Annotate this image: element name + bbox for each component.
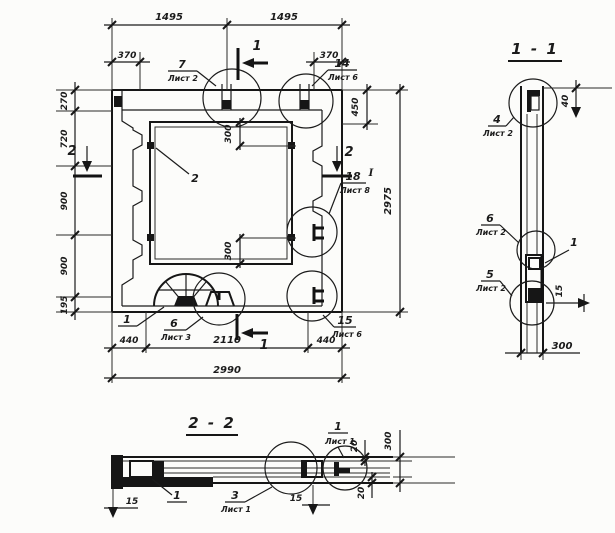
callout-2-opening: 2 xyxy=(156,148,199,185)
callout-number: 6 xyxy=(170,317,178,330)
detail-circles xyxy=(193,69,337,325)
section-1-label: 1 xyxy=(259,338,268,353)
callout-4-sheet-2: 4 Лист 2 xyxy=(482,113,514,138)
drawing-canvas: 1495 1495 370 370 xyxy=(0,0,615,533)
dim-300: 300 xyxy=(552,341,573,352)
dim-195: 195 xyxy=(60,296,70,315)
callout-sheet: Лист 2 xyxy=(475,284,506,293)
plan-panel-outline xyxy=(112,90,342,312)
callout-sheet: Лист 6 xyxy=(331,330,362,339)
dim-300: 300 xyxy=(384,432,394,451)
callout-number: 1 xyxy=(334,420,342,433)
callout-6-sheet-2: 6 Лист 2 xyxy=(475,212,519,243)
section-1-1: 1 - 1 40 xyxy=(475,40,612,360)
dim-450: 450 xyxy=(351,98,361,118)
channel-embed-detail xyxy=(510,231,555,325)
dim-15-left: 15 xyxy=(126,497,139,507)
callout-number: 14 xyxy=(334,57,349,70)
callout-sheet: Лист 2 xyxy=(475,228,506,237)
section-1-label: 1 xyxy=(252,39,261,54)
dim-900-b: 900 xyxy=(60,257,70,276)
callout-sheet: Лист 1 xyxy=(324,437,355,446)
callout-sheet: Лист 8 xyxy=(339,186,370,195)
callout-number: 1 xyxy=(570,236,578,249)
bottom-anchor-key xyxy=(206,292,234,306)
callout-number: 1 xyxy=(123,313,131,326)
callout-14-sheet-6: 14 Лист 6 xyxy=(312,57,358,86)
callout-sheet: Лист 6 xyxy=(327,73,358,82)
callout-number: 18 xyxy=(345,170,361,183)
callout-number: 2 xyxy=(191,172,199,185)
section-mark-1-top: 1 xyxy=(238,39,268,80)
engineering-drawing-sheet: 1495 1495 370 370 xyxy=(0,0,615,533)
callout-sheet: Лист 1 xyxy=(220,505,251,514)
callout-number: 3 xyxy=(231,489,239,502)
section-2-label: 2 xyxy=(344,145,353,160)
callout-number: 15 xyxy=(337,314,353,327)
section-mark-2-left: 2 xyxy=(67,144,102,176)
dim-2975: 2975 xyxy=(383,187,394,215)
callout-mark: I xyxy=(368,168,374,179)
dim-900-a: 900 xyxy=(60,192,70,211)
dim-270: 270 xyxy=(60,92,70,111)
dim-370-left: 370 xyxy=(118,51,137,61)
section-2-2-title: 2 - 2 xyxy=(188,414,236,432)
dim-1495-left: 1495 xyxy=(155,12,183,23)
callout-number: 7 xyxy=(178,58,186,71)
callout-1-loop: 1 xyxy=(118,307,164,326)
section-2-label: 2 xyxy=(67,144,76,159)
callout-number: 6 xyxy=(486,212,494,225)
left-end-detail xyxy=(111,455,213,489)
callout-1-channel: 1 xyxy=(545,236,578,263)
section-mark-1-bottom: 1 xyxy=(237,314,269,353)
callout-5-sheet-2: 5 Лист 2 xyxy=(475,268,512,296)
dim-15-right: 15 xyxy=(290,494,303,504)
top-anchor-detail xyxy=(509,79,557,127)
plan-callouts: 7 Лист 2 14 Лист 6 2 18 I Лист 8 xyxy=(118,57,374,342)
dim-300-bottom: 300 xyxy=(224,242,234,261)
dim-15: 15 xyxy=(555,285,565,298)
callout-number: 4 xyxy=(492,113,501,126)
dim-20-bottom: 20 xyxy=(357,487,367,500)
dim-440-left: 440 xyxy=(119,336,139,346)
plan-opening xyxy=(147,122,295,264)
callout-3-sheet-1: 3 Лист 1 xyxy=(220,487,272,514)
dim-300-top: 300 xyxy=(224,125,234,144)
callout-sheet: Лист 2 xyxy=(482,129,513,138)
callout-sheet: Лист 2 xyxy=(167,74,198,83)
callout-sheet: Лист 3 xyxy=(160,333,191,342)
corner-embed-mark xyxy=(114,96,122,107)
callout-6-sheet-3: 6 Лист 3 xyxy=(160,317,203,342)
dim-2990: 2990 xyxy=(213,365,241,376)
embed-plate-mark xyxy=(147,234,154,241)
dim-1495-right: 1495 xyxy=(270,12,298,23)
section-2-2: 2 - 2 15 xyxy=(104,414,455,518)
embed-plate-mark xyxy=(147,142,154,149)
section-1-1-title: 1 - 1 xyxy=(511,40,559,58)
dim-40: 40 xyxy=(561,95,571,109)
callout-number: 1 xyxy=(173,489,181,502)
callout-number: 5 xyxy=(486,268,494,281)
top-wall-embeds xyxy=(222,84,309,110)
plan-view: 1495 1495 370 370 xyxy=(56,12,408,383)
